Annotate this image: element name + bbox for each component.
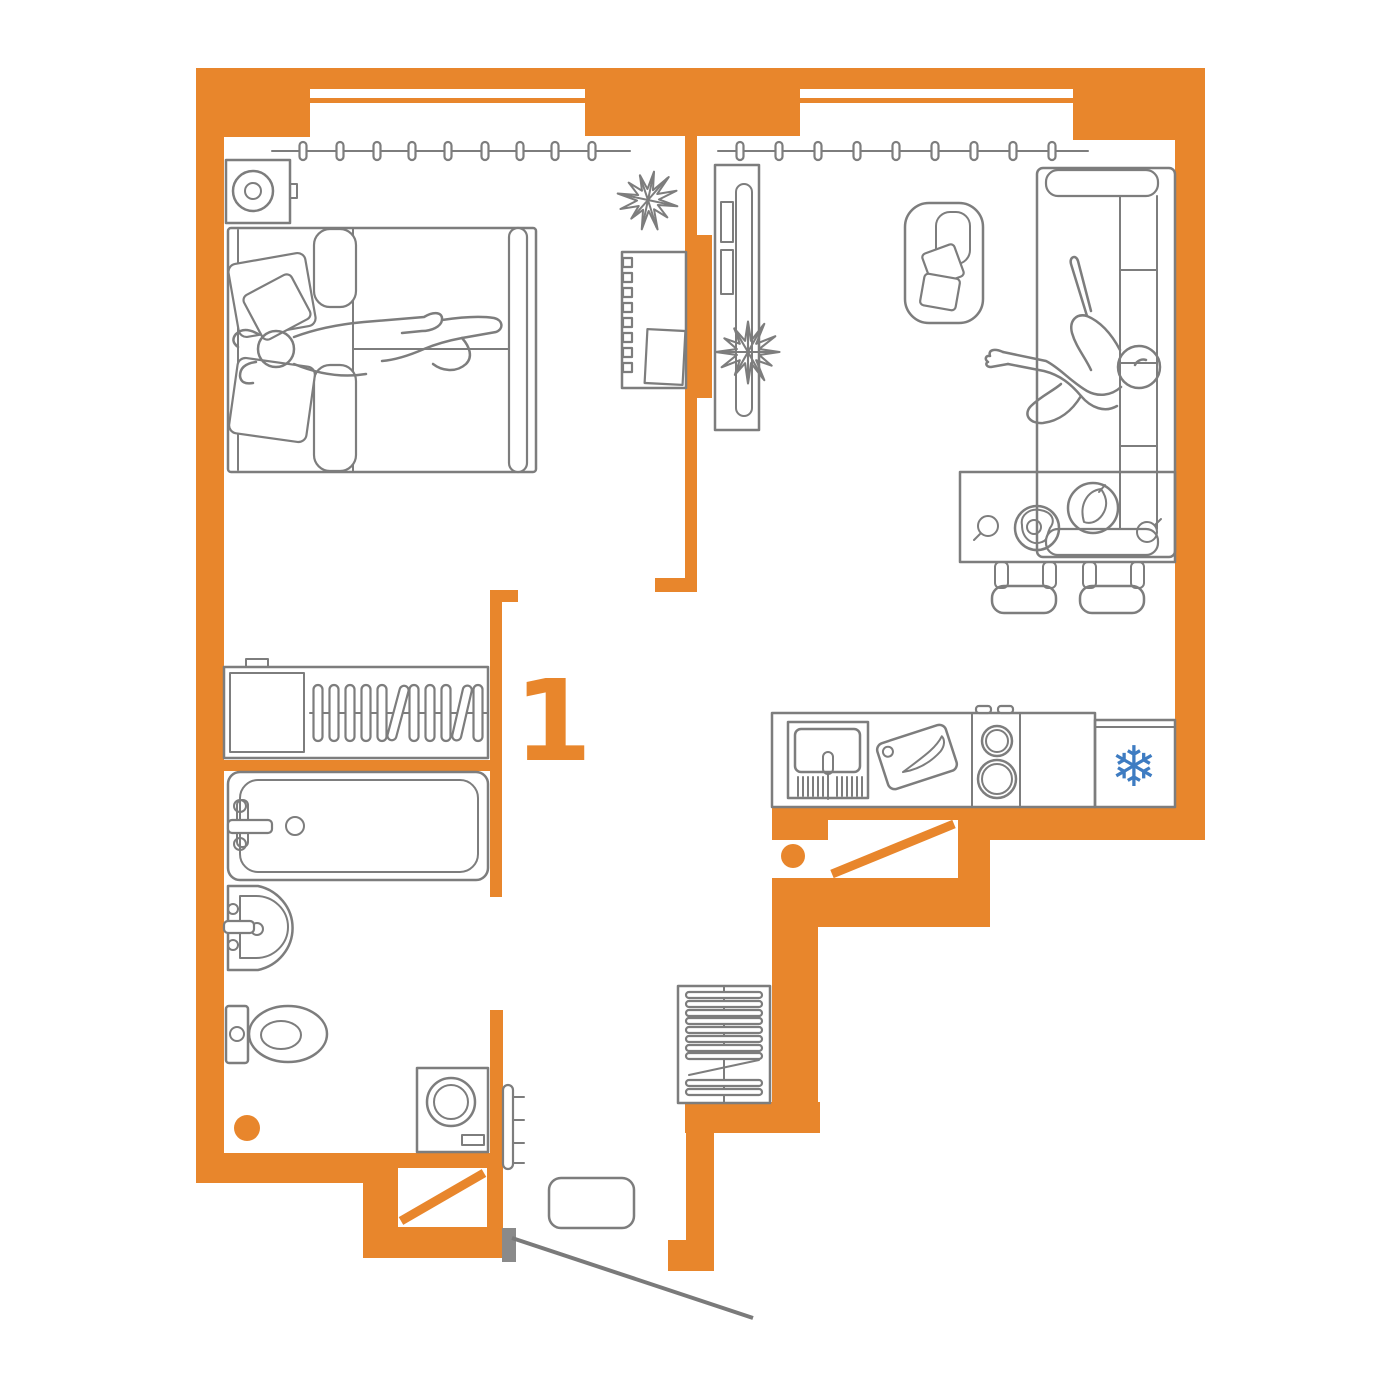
living-room-window <box>800 68 1073 103</box>
decoration <box>623 348 632 357</box>
wall-hall-lower <box>490 1010 503 1153</box>
decoration <box>623 288 632 297</box>
sofa <box>986 168 1175 557</box>
decoration <box>686 1080 762 1086</box>
decoration <box>517 142 524 160</box>
decoration <box>623 273 632 282</box>
decoration <box>686 1053 762 1059</box>
entry-door-swing <box>502 1228 753 1318</box>
decoration <box>474 685 483 741</box>
plant-icon <box>715 322 779 384</box>
toilet <box>226 1006 327 1063</box>
faucet-icon <box>823 752 833 774</box>
decoration <box>482 142 489 160</box>
wall-bottom <box>196 1153 363 1183</box>
decoration <box>971 142 978 160</box>
decoration <box>552 142 559 160</box>
washing-machine <box>417 1068 488 1152</box>
decoration <box>854 142 861 160</box>
plate-fruit <box>1068 483 1118 533</box>
living-room <box>715 142 1175 613</box>
curtain-rail-living <box>718 142 1088 160</box>
decoration <box>686 1027 762 1033</box>
tv-icon <box>736 184 752 416</box>
washbasin <box>224 886 293 970</box>
stove <box>976 706 1016 798</box>
knife-icon <box>896 736 949 773</box>
decoration <box>623 333 632 342</box>
wall-hall-cap <box>490 590 518 602</box>
decoration <box>442 685 451 741</box>
decoration <box>1010 142 1017 160</box>
decoration <box>300 142 307 160</box>
decoration <box>374 142 381 160</box>
radiator <box>678 986 770 1103</box>
tv-panel <box>715 165 759 430</box>
decoration <box>337 142 344 160</box>
floor-plan: ❄ <box>0 0 1400 1400</box>
decoration <box>686 992 762 998</box>
wall-hall-upper <box>490 602 502 897</box>
decoration <box>932 142 939 160</box>
decoration <box>623 303 632 312</box>
decoration <box>409 142 416 160</box>
wall-hall-foot <box>668 1240 714 1271</box>
decoration <box>330 685 339 741</box>
bedroom-window <box>310 68 585 103</box>
door-hinge-dot <box>234 1115 260 1141</box>
drain-icon <box>286 817 304 835</box>
bathtub <box>228 772 488 880</box>
doormat <box>549 1178 634 1228</box>
armchair <box>905 203 983 323</box>
cutting-board <box>875 723 958 791</box>
decoration <box>410 685 419 741</box>
decoration <box>346 685 355 741</box>
decoration <box>776 142 783 160</box>
wardrobe <box>224 659 488 758</box>
wall-room-divider-foot <box>655 578 697 592</box>
cup <box>978 516 998 536</box>
door-swing-line <box>512 1238 753 1318</box>
decoration <box>737 142 744 160</box>
table-lamp <box>233 171 273 211</box>
bathroom <box>224 772 488 1152</box>
door-hinge-dot <box>781 844 805 868</box>
towel-rail <box>503 1085 524 1169</box>
chair <box>992 562 1056 613</box>
entry-door <box>363 1153 503 1258</box>
kitchen: ❄ <box>772 706 1175 807</box>
wall-top-pier <box>585 68 800 136</box>
decoration <box>686 1089 762 1095</box>
wall-hall-stub <box>685 1102 820 1133</box>
hallway: 1 <box>502 657 770 1318</box>
decoration <box>362 685 371 741</box>
decoration <box>378 685 387 741</box>
wall-right <box>1175 68 1205 840</box>
plant-icon <box>611 165 683 235</box>
decoration <box>426 685 435 741</box>
decoration <box>623 318 632 327</box>
decoration <box>623 258 632 267</box>
door-jamb-plate <box>502 1228 516 1262</box>
kitchen-sink <box>788 722 868 799</box>
unit-number: 1 <box>514 657 592 787</box>
curtain-rail-bedroom <box>272 142 630 160</box>
bedroom <box>226 142 686 472</box>
decoration <box>815 142 822 160</box>
decoration <box>314 685 323 741</box>
decoration <box>589 142 596 160</box>
decoration <box>686 1001 762 1007</box>
wall-left <box>196 68 224 1183</box>
decoration <box>686 1036 762 1042</box>
wall-bath-divider <box>196 760 502 771</box>
freezer-icon: ❄ <box>1111 735 1158 800</box>
nightstand <box>226 160 297 223</box>
person-on-sofa <box>986 257 1160 423</box>
decoration <box>686 1018 762 1024</box>
decoration <box>445 142 452 160</box>
bed <box>227 228 536 472</box>
dresser <box>622 252 686 388</box>
decoration <box>686 1010 762 1016</box>
wall-room-divider-thick <box>685 235 712 398</box>
kitchen-wall <box>772 808 1175 1133</box>
decoration <box>686 1045 762 1051</box>
wall-top-left-corner <box>196 68 310 137</box>
decoration <box>623 363 632 372</box>
decoration <box>1049 142 1056 160</box>
decoration <box>893 142 900 160</box>
chair <box>1080 562 1144 613</box>
fridge: ❄ <box>1095 720 1175 807</box>
